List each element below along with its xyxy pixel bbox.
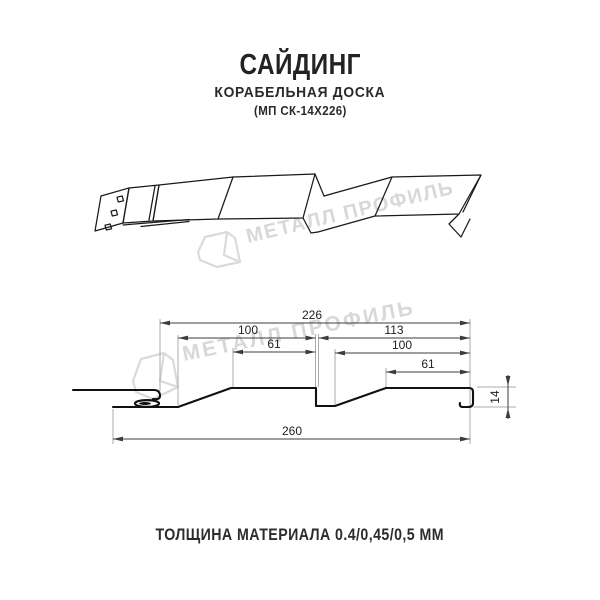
brand-logo-icon (198, 232, 240, 267)
page-title: САЙДИНГ (0, 49, 600, 82)
page-subtitle-text: КОРАБЕЛЬНАЯ ДОСКА (215, 84, 386, 101)
model-code: (МП СК-14Х226) (0, 102, 600, 120)
dim-label-226: 226 (302, 308, 322, 322)
brand-watermark-3d: МЕТАЛЛ ПРОФИЛЬ (198, 177, 456, 267)
slope-face-1 (153, 177, 233, 221)
dim-label-100-left: 100 (238, 323, 258, 337)
brand-logo-icon (133, 353, 178, 399)
brand-watermark-text: МЕТАЛЛ ПРОФИЛЬ (180, 296, 417, 366)
product-sheet: { "header": { "title": "САЙДИНГ", "subti… (0, 0, 600, 600)
lock-curl-core (139, 402, 151, 405)
page-title-text: САЙДИНГ (239, 49, 360, 82)
dim-label-14: 14 (488, 390, 502, 404)
nail-hole-icon (117, 196, 124, 202)
dimension-lines (113, 323, 508, 439)
model-code-text: (МП СК-14Х226) (254, 104, 347, 118)
nail-flange-line (73, 390, 160, 399)
brand-watermark-text: МЕТАЛЛ ПРОФИЛЬ (244, 177, 456, 248)
dim-label-100-right: 100 (392, 338, 412, 352)
dim-label-61-right: 61 (421, 357, 435, 371)
profile-outline (73, 388, 473, 407)
end-hem-fold (463, 175, 481, 212)
cross-section-drawing: МЕТАЛЛ ПРОФИЛЬ 226 100 (60, 295, 540, 455)
page-subtitle: КОРАБЕЛЬНАЯ ДОСКА (0, 84, 600, 102)
thickness-note: ТОЛЩИНА МАТЕРИАЛА 0.4/0,45/0,5 ММ (0, 526, 600, 545)
dim-label-61-left: 61 (267, 337, 281, 351)
nail-hole-icon (111, 210, 118, 216)
siding-3d-drawing: МЕТАЛЛ ПРОФИЛЬ (85, 165, 495, 270)
end-hook-flap (449, 214, 470, 237)
panel-section-line (113, 388, 473, 407)
dim-label-260: 260 (282, 424, 302, 438)
dim-label-113: 113 (384, 323, 403, 337)
step-back-edge (315, 174, 324, 196)
thickness-note-text: ТОЛЩИНА МАТЕРИАЛА 0.4/0,45/0,5 ММ (156, 526, 445, 545)
